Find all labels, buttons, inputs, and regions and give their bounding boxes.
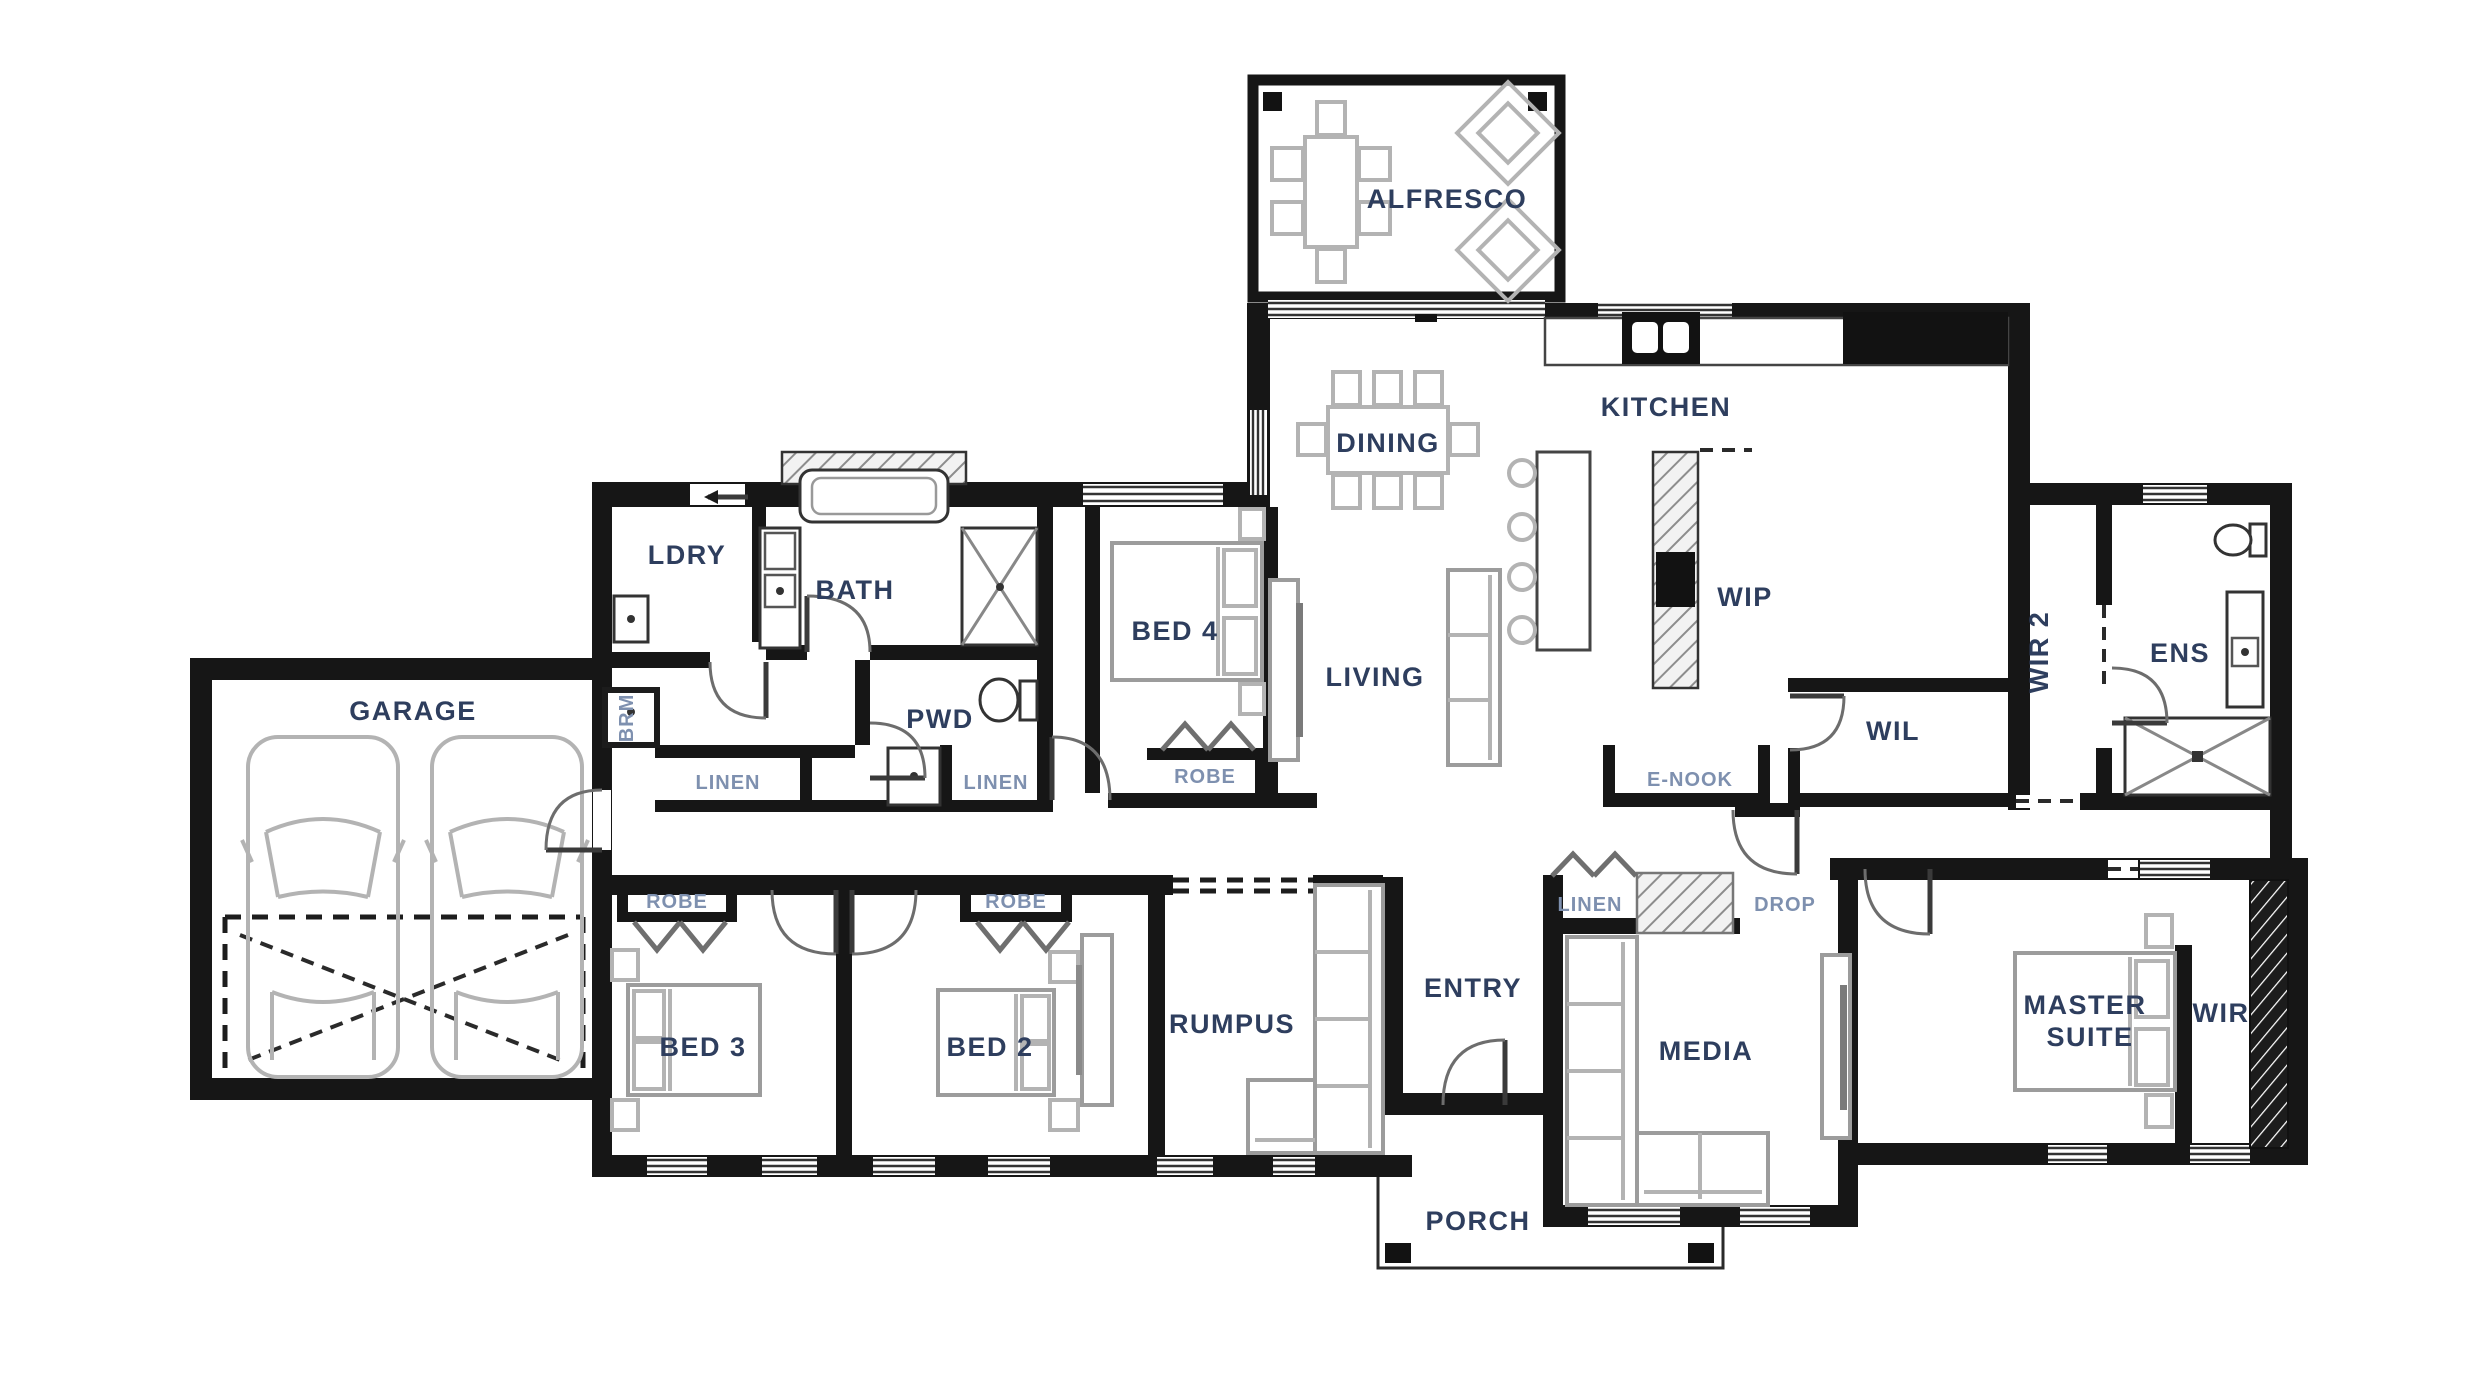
room-label-wip: WIP xyxy=(1717,582,1773,612)
robe-door xyxy=(634,922,726,950)
room-label-bed3: BED 3 xyxy=(659,1032,746,1062)
room-label-dining: DINING xyxy=(1336,428,1440,458)
garage-contents xyxy=(225,737,588,1077)
wir-wardrobe xyxy=(2250,880,2288,1148)
bed3-furniture xyxy=(612,922,760,1130)
bedside-table xyxy=(612,950,638,980)
bed2-door xyxy=(852,890,916,954)
bed xyxy=(1112,543,1262,680)
room-label-garage: GARAGE xyxy=(349,696,477,726)
room-label-ens: ENS xyxy=(2150,638,2210,668)
floor-plan: ALFRESCO DINING KITCHEN WIP LIVING WIL W… xyxy=(0,0,2482,1374)
room-label-enook: E-NOOK xyxy=(1647,769,1733,791)
closet-label-linen: LINEN xyxy=(696,772,761,794)
oven-tower xyxy=(1656,552,1695,607)
bed2-window-1 xyxy=(873,1157,935,1175)
robe-door xyxy=(977,922,1069,950)
master-window-1 xyxy=(2048,1145,2107,1163)
bed3-door xyxy=(772,890,836,954)
closet-label-linen: LINEN xyxy=(1558,894,1623,916)
closet-label-linen: LINEN xyxy=(964,772,1029,794)
room-label-ldry: LDRY xyxy=(648,540,727,570)
tv xyxy=(1296,603,1303,737)
ens-window xyxy=(2143,485,2207,503)
room-label-wir: WIR xyxy=(2193,998,2250,1028)
sofa-chaise xyxy=(1248,1080,1315,1153)
stool xyxy=(1509,564,1535,590)
garage-door-opening xyxy=(593,790,611,850)
room-label-alfresco: ALFRESCO xyxy=(1367,184,1528,214)
closet-label-drop: DROP xyxy=(1754,894,1816,916)
connector-window xyxy=(1250,410,1267,495)
robe-door xyxy=(1162,724,1254,750)
sofa xyxy=(1448,570,1500,765)
stool xyxy=(1509,514,1535,540)
bedside-table xyxy=(1050,1100,1078,1130)
room-label-master-line2: SUITE xyxy=(2046,1022,2133,1052)
bed4-window xyxy=(1083,484,1223,505)
car xyxy=(242,737,404,1077)
closet-label-robe: ROBE xyxy=(646,891,708,913)
car xyxy=(426,737,588,1077)
wil-door xyxy=(1790,696,1844,750)
bedside-table xyxy=(1240,509,1264,539)
closet-label-robe: ROBE xyxy=(985,891,1047,913)
bedside-table xyxy=(2146,1095,2172,1127)
stool xyxy=(1509,617,1535,643)
closet-label-robe: ROBE xyxy=(1174,766,1236,788)
media-door xyxy=(1733,810,1797,874)
porch-post xyxy=(1688,1243,1714,1263)
room-label-bed4: BED 4 xyxy=(1131,616,1218,646)
toilet xyxy=(2215,524,2266,556)
room-label-entry: ENTRY xyxy=(1424,973,1522,1003)
room-label-porch: PORCH xyxy=(1425,1206,1530,1236)
room-label-media: MEDIA xyxy=(1659,1036,1754,1066)
rumpus-window-1 xyxy=(1157,1157,1213,1175)
rumpus-window-2 xyxy=(1273,1157,1315,1175)
shower xyxy=(962,528,1037,645)
master-furniture xyxy=(2015,915,2175,1127)
master-window-2 xyxy=(2190,1145,2250,1163)
wir-passage xyxy=(2108,860,2138,878)
master-top-window xyxy=(2140,860,2210,878)
rumpus-opening xyxy=(1173,880,1313,891)
tv xyxy=(1076,965,1082,1075)
linen-door xyxy=(1552,854,1636,876)
media-window-2 xyxy=(1740,1207,1810,1225)
tv xyxy=(1840,985,1847,1110)
porch-post xyxy=(1385,1243,1411,1263)
bed4-door xyxy=(1052,737,1110,800)
tv-unit xyxy=(1270,580,1298,760)
drop-zone-bench xyxy=(1637,873,1733,933)
ldry-door xyxy=(710,662,766,718)
bedside-table xyxy=(612,1100,638,1130)
toilet xyxy=(980,679,1037,721)
bedside-table xyxy=(2146,915,2172,947)
ens-door xyxy=(2112,668,2167,723)
stool xyxy=(1509,460,1535,486)
bedside-table xyxy=(1240,684,1264,714)
island-bench xyxy=(1537,452,1590,650)
room-label-wil: WIL xyxy=(1866,716,1920,746)
bed3-window-1 xyxy=(647,1157,707,1175)
bedside-table xyxy=(1050,952,1078,982)
bed3-window-2 xyxy=(762,1157,817,1175)
bed2-furniture xyxy=(938,922,1112,1130)
shower xyxy=(2125,718,2270,795)
wir2-opening xyxy=(2016,795,2076,808)
room-label-living: LIVING xyxy=(1325,662,1424,692)
media-window-1 xyxy=(1588,1207,1680,1225)
outdoor-table xyxy=(1305,137,1357,247)
bed2-window-2 xyxy=(988,1157,1050,1175)
room-label-bath: BATH xyxy=(816,575,895,605)
room-label-bed2: BED 2 xyxy=(946,1032,1033,1062)
closet-label-brm: BRM xyxy=(616,694,638,743)
ldry-door-opening xyxy=(690,484,748,505)
room-label-wir2: WIR 2 xyxy=(2024,611,2054,694)
floor-plan-drawing: ALFRESCO DINING KITCHEN WIP LIVING WIL W… xyxy=(0,0,2482,1374)
room-label-master-line1: MASTER xyxy=(2024,990,2147,1020)
room-label-kitchen: KITCHEN xyxy=(1601,392,1732,422)
lounge-chair xyxy=(1457,199,1559,301)
sofa-chaise xyxy=(1637,1133,1768,1205)
dresser xyxy=(1082,935,1112,1105)
room-label-rumpus: RUMPUS xyxy=(1169,1009,1295,1039)
tall-cabinets xyxy=(1843,312,2008,364)
room-label-pwd: PWD xyxy=(906,704,974,734)
